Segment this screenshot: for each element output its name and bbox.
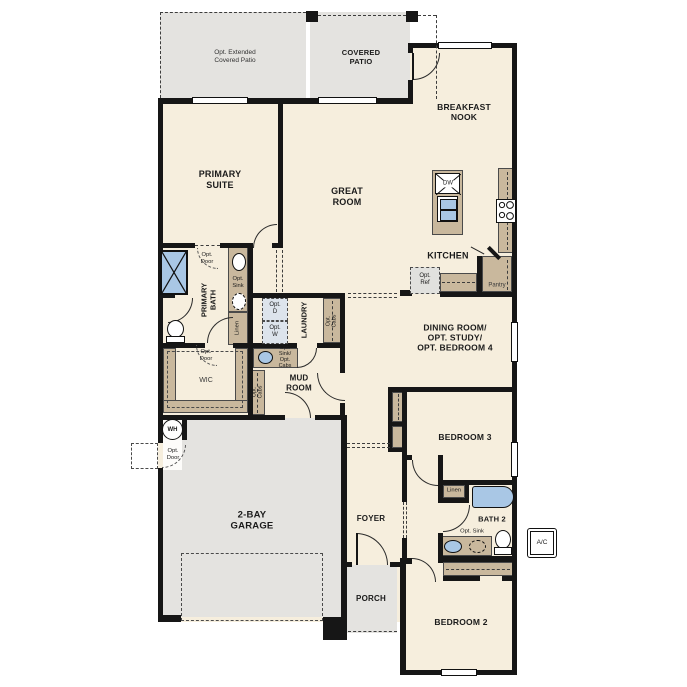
label-opt-sink-cabs: Opt. Sink/ Opt. Cabs	[279, 345, 292, 369]
water-heater-icon: WH	[162, 419, 183, 440]
patio-outline-dashed	[160, 12, 306, 13]
wall	[438, 498, 469, 503]
wall	[317, 343, 340, 348]
wall	[402, 558, 412, 564]
room-label-garage: 2-BAY GARAGE	[231, 510, 274, 533]
label-opt-ref: Opt. Ref	[419, 273, 430, 287]
counter-dashed	[442, 282, 475, 283]
room-label-foyer: FOYER	[357, 514, 386, 524]
room-label-laundry: LAUNDRY	[301, 302, 310, 338]
label-opt-cabs-mud: Opt. Cabs	[252, 386, 265, 399]
label-opt-door-bath: Opt. Door	[201, 252, 214, 266]
room-label-breakfast-nook: BREAKFAST NOOK	[437, 102, 491, 122]
label-opt-sink-pb: Opt. Sink	[232, 276, 243, 290]
wall	[388, 387, 517, 392]
window	[438, 42, 492, 49]
room-label-primary-suite: PRIMARY SUITE	[199, 169, 242, 191]
wall	[388, 422, 404, 426]
wall	[158, 98, 192, 104]
room-label-bedroom2: BEDROOM 2	[434, 617, 487, 627]
window	[511, 442, 518, 477]
window	[511, 322, 518, 362]
room-label-primary-bath: PRIMARY BATH	[200, 283, 217, 317]
wall	[248, 98, 318, 104]
toilet-tank	[494, 547, 512, 555]
wall	[341, 562, 352, 567]
wall	[402, 387, 407, 455]
label-opt-door-garage: Opt. Door	[167, 448, 180, 462]
shower-icon	[160, 250, 188, 295]
wall	[408, 80, 413, 100]
closet-rod-dashed	[446, 569, 510, 570]
wall	[440, 556, 517, 562]
toilet-tank	[166, 336, 185, 343]
wall	[323, 617, 343, 640]
roof-line-dashed	[418, 15, 436, 16]
label-opt-d: Opt. D	[269, 302, 280, 316]
room-label-ext-patio: Opt. Extended Covered Patio	[214, 49, 256, 65]
wall	[158, 243, 195, 248]
patio-post	[406, 11, 418, 22]
ceiling-break-dashed	[347, 443, 390, 444]
door-leaf	[356, 533, 358, 565]
wall	[340, 403, 345, 415]
label-linen-primary: Linen	[235, 321, 242, 335]
window	[318, 97, 377, 104]
wall	[388, 448, 404, 452]
room-label-dining: DINING ROOM/ OPT. STUDY/ OPT. BEDROOM 4	[417, 323, 493, 354]
opt-sink-icon	[232, 293, 246, 310]
label-opt-cabs-laundry: Opt. Cabs	[326, 315, 339, 328]
wall	[400, 670, 443, 675]
room-label-bath2: BATH 2	[478, 515, 506, 524]
wall	[443, 576, 480, 581]
wall	[158, 468, 163, 622]
dishwasher-icon: DW	[435, 173, 460, 194]
label-linen-hall: Linen	[447, 488, 461, 495]
opt-sink-icon	[469, 540, 486, 553]
wall	[402, 455, 412, 460]
room-label-mud-room: MUD ROOM	[286, 373, 312, 392]
wall	[158, 615, 181, 622]
room-label-great-room: GREAT ROOM	[331, 186, 363, 208]
porch-edge-dashed	[348, 631, 397, 632]
wall	[440, 292, 517, 297]
label-opt-door-wic: Opt. Door	[200, 349, 213, 363]
door-leaf	[412, 53, 414, 80]
ceiling-break-dashed	[347, 447, 390, 448]
opt-door-box	[131, 443, 158, 469]
wall	[502, 576, 517, 581]
window	[192, 97, 248, 104]
ceiling-break-dashed	[348, 293, 397, 294]
wall	[400, 558, 406, 675]
kitchen-sink-icon	[437, 196, 458, 222]
opening-dashed	[282, 250, 283, 292]
wall	[408, 43, 413, 53]
wall-opening-dashed	[406, 502, 407, 538]
opening-dashed	[276, 250, 277, 292]
label-ac: A/C	[537, 539, 548, 547]
stove-icon	[496, 199, 516, 223]
floor-plan: DW WH Opt. Extended Covered Patio COVERE…	[0, 0, 687, 687]
window	[441, 669, 477, 676]
patio-outline-dashed	[318, 15, 406, 16]
label-pantry: Pantry	[488, 282, 505, 289]
wall	[512, 43, 517, 322]
wall	[248, 345, 253, 415]
wall	[341, 415, 347, 640]
garage-door-outline	[181, 553, 323, 621]
wall	[233, 343, 248, 348]
bathtub-icon	[472, 486, 514, 508]
room-label-wic: WIC	[199, 377, 213, 385]
counter-dashed	[507, 260, 508, 290]
sink-icon	[232, 253, 246, 271]
patio-post	[306, 11, 318, 22]
wall	[512, 362, 517, 442]
ceiling-break-dashed	[348, 297, 397, 298]
room-label-porch: PORCH	[356, 594, 386, 604]
room-label-covered-patio: COVERED PATIO	[342, 48, 381, 66]
wall	[476, 670, 517, 675]
wall	[278, 98, 283, 248]
patio-outline-dashed	[160, 12, 161, 98]
dw-label: DW	[442, 180, 454, 187]
mud-sink-icon	[258, 351, 273, 364]
label-opt-sink-bath2: Opt. Sink	[460, 529, 484, 536]
wall	[438, 480, 517, 485]
label-opt-w: Opt. W	[269, 325, 280, 339]
wall	[315, 415, 341, 420]
wall	[340, 293, 345, 373]
room-label-bedroom3: BEDROOM 3	[438, 432, 491, 442]
room-label-kitchen: KITCHEN	[427, 251, 468, 262]
roof-line-dashed	[436, 15, 437, 99]
wall	[477, 256, 482, 297]
wall-opening-dashed	[403, 502, 404, 538]
sink-icon	[444, 540, 462, 553]
wall-opening-dashed	[195, 245, 220, 246]
wall	[438, 455, 443, 503]
closet-rod-dashed	[398, 394, 399, 420]
